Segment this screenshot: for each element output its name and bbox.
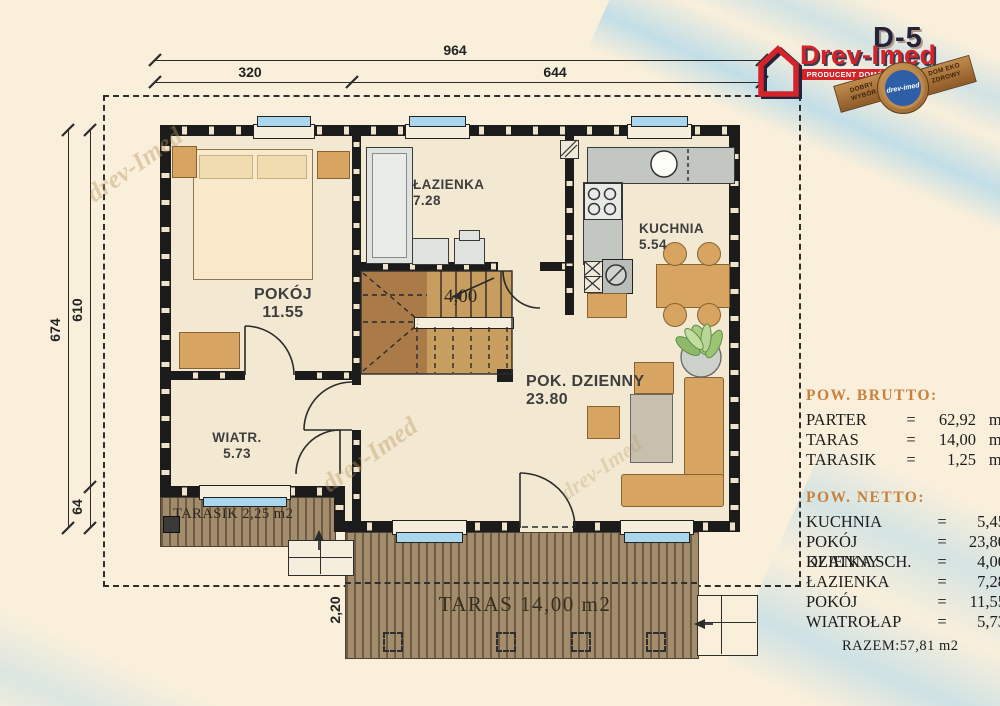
room-area: 23.80 [526,391,656,409]
table-row: KUCHNIA = 5,45 [806,512,1000,532]
badge-medal: drev-imed [877,62,929,114]
row-name: TARAS [806,430,898,450]
room-label-dzienny: POK. DZIENNY 23.80 [526,373,656,410]
house-icon [756,36,804,102]
row-unit: m2 [976,410,1000,430]
table-row: WIATROŁAP = 5,73 [806,612,1000,632]
room-area: 5.54 [639,237,719,253]
room-area: 11.55 [233,304,333,322]
room-label-pokoj: POKÓJ 11.55 [233,286,333,323]
room-name: POKÓJ [233,286,333,304]
row-eq: = [898,450,924,470]
table-title: POW. NETTO: [806,489,1000,507]
table-row: KLATKA SCH. = 4,00 [806,552,1000,572]
row-name: ŁAZIENKA [806,572,930,592]
row-value: 5,73 [954,612,1000,632]
row-name: KUCHNIA [806,512,930,532]
row-name: WIATROŁAP [806,612,930,632]
room-name: WIATR. [197,430,277,446]
row-value: 62,92 [924,410,976,430]
room-name: POK. DZIENNY [526,373,656,391]
area-table-netto: POW. NETTO: KUCHNIA = 5,45 POKÓJ DZIENNY… [806,489,1000,655]
room-area: 7.28 [413,193,503,209]
floorplan-sheet: 964 320 644 674 610 64 2,20 TARASIK 2,25… [0,0,1000,706]
row-value: 4,00 [954,552,1000,572]
row-eq: = [930,592,954,612]
row-value: 5,45 [954,512,1000,532]
room-label-lazienka: ŁAZIENKA 7.28 [413,177,503,208]
table-row: POKÓJ DZIENNY = 23,80 [806,532,1000,552]
row-name: PARTER [806,410,898,430]
row-value: 14,00 [924,430,976,450]
area-table-brutto: POW. BRUTTO: PARTER = 62,92 m2 TARAS = 1… [806,387,996,470]
row-unit: m2 [976,450,1000,470]
room-name: KUCHNIA [639,221,719,237]
badge-medal-center: drev-imed [879,64,928,113]
row-eq: = [930,572,954,592]
room-name: ŁAZIENKA [413,177,503,193]
row-eq: = [930,552,954,572]
row-value: 7,28 [954,572,1000,592]
row-eq: = [898,430,924,450]
row-unit: m2 [976,430,1000,450]
logo-block: D-5 Drev-Imed PRODUCENT DOMÓW Z DREWNA D… [740,20,990,130]
row-eq: = [930,512,954,532]
table-row: POKÓJ = 11,55 [806,592,1000,612]
row-name: POKÓJ [806,592,930,612]
row-value: 11,55 [954,592,1000,612]
room-label-stairs: 4,00 [444,286,496,308]
row-eq: = [898,410,924,430]
row-name: KLATKA SCH. [806,552,930,572]
room-label-wiatr: WIATR. 5.73 [197,430,277,461]
table-total: RAZEM:57,81 m2 [842,638,1000,655]
table-row: ŁAZIENKA = 7,28 [806,572,1000,592]
table-title: POW. BRUTTO: [806,387,996,405]
room-area: 5.73 [197,446,277,462]
row-name: TARASIK [806,450,898,470]
table-row: TARAS = 14,00 m2 [806,430,996,450]
table-row: PARTER = 62,92 m2 [806,410,996,430]
row-eq: = [930,612,954,632]
plant-icon [673,323,726,377]
room-label-kuchnia: KUCHNIA 5.54 [639,221,719,252]
badge-medal-text: drev-imed [886,82,920,95]
row-value: 1,25 [924,450,976,470]
table-row: TARASIK = 1,25 m2 [806,450,996,470]
